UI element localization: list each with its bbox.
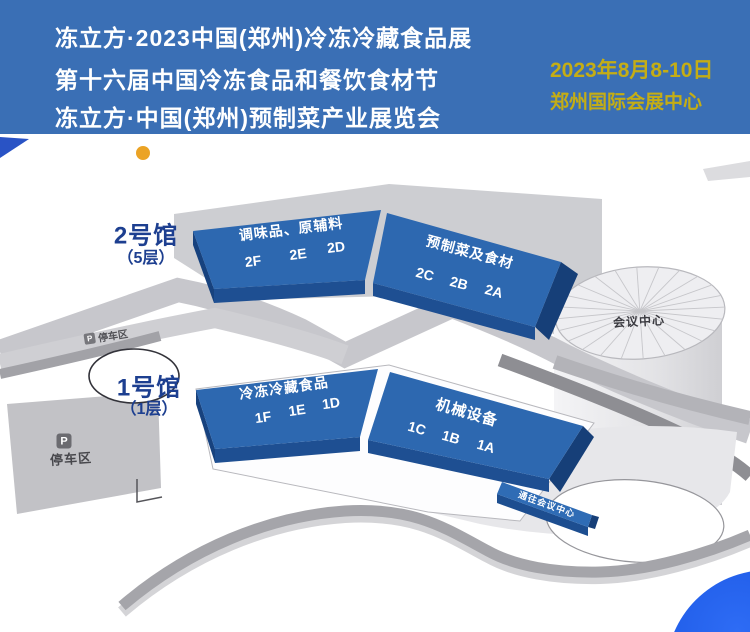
expo-title-line-1: 冻立方·2023中国(郑州)冷冻冷藏食品展 [55,19,472,53]
expo-date: 2023年8月8-10日 [550,54,713,84]
corner-triangle-accent [0,137,29,158]
parking-area-label: 停车区 [49,447,92,469]
expo-title-line-2: 第十六届中国冷冻食品和餐饮食材节 [55,61,439,95]
zone-1D: 1D [321,394,341,412]
zone-1F: 1F [254,408,272,426]
conference-center-label: 会议中心 [613,311,666,331]
zone-2E: 2E [289,245,308,263]
orange-dot-accent [136,146,150,160]
blue-corner-blob [666,570,750,632]
parking-icon-small: P [83,332,96,345]
top-right-road-sliver [703,161,750,181]
zone-1E: 1E [287,401,306,419]
header-banner: 冻立方·2023中国(郑州)冷冻冷藏食品展 第十六届中国冷冻食品和餐饮食材节 冻… [0,0,750,134]
expo-floorplan-page: { "header": { "titles": [ "冻立方·2023中国(郑州… [0,0,750,632]
expo-venue: 郑州国际会展中心 [550,87,702,114]
hall2-floor: （5层） [118,244,175,268]
expo-title-line-3: 冻立方·中国(郑州)预制菜产业展览会 [55,99,441,133]
parking-icon-large: P [57,434,72,449]
zone-2F: 2F [244,252,262,270]
zone-2D: 2D [326,238,346,256]
hall1-floor: （1层） [121,395,178,419]
